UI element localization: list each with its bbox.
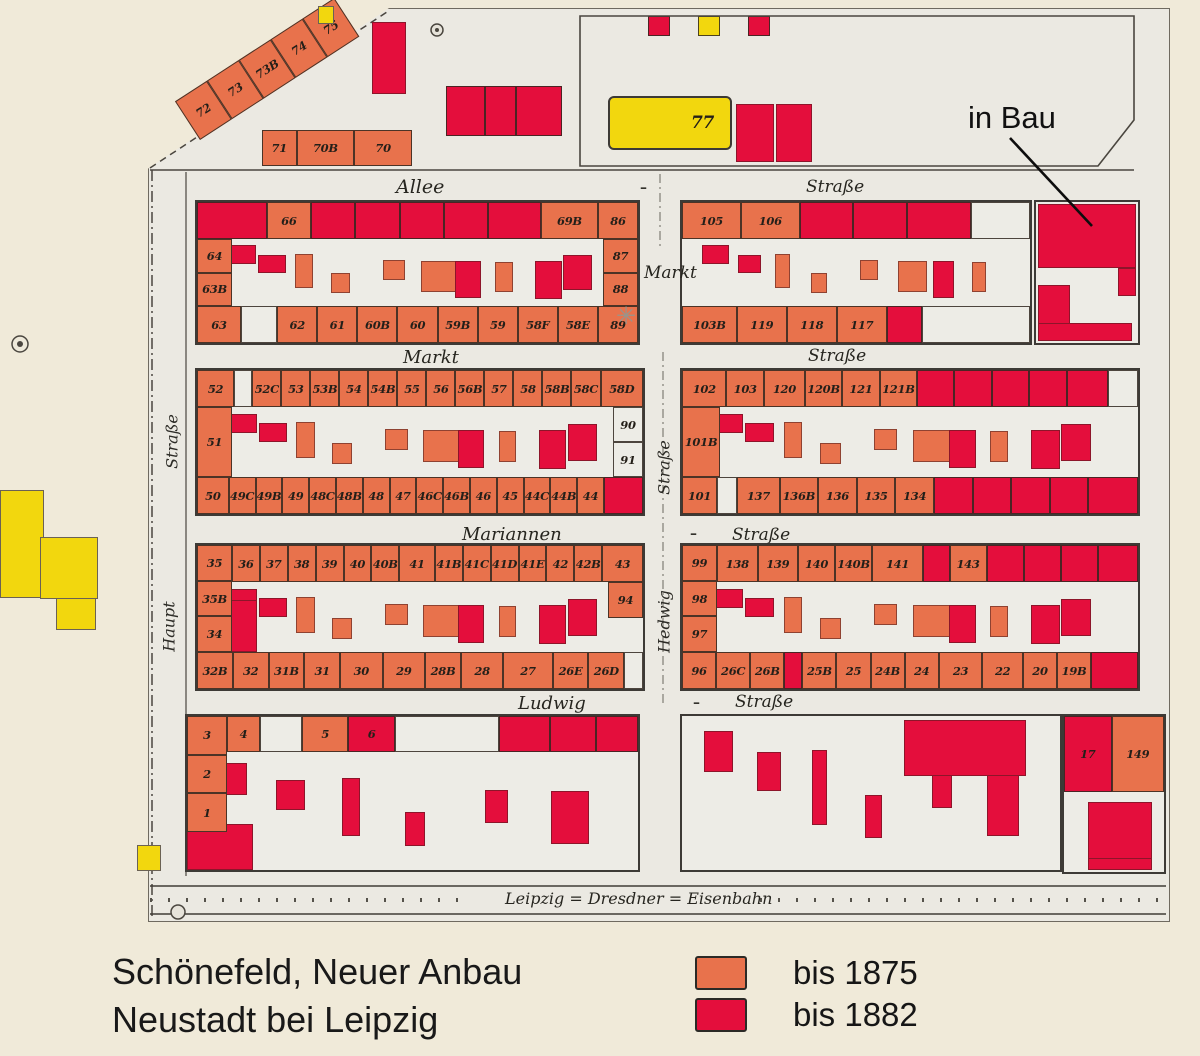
plot-number: 58B [545,382,570,396]
building [551,791,589,844]
building [455,261,481,298]
building [874,429,897,449]
plot: 27 [503,652,552,689]
plot-number: 49B [257,489,282,503]
plot: 54B [368,370,397,407]
plot [241,306,277,343]
plot-number: 139 [766,557,789,571]
plot [624,652,643,689]
plot: 105 [682,202,741,239]
legend-row: bis 1882 [695,998,918,1032]
plot-number: 32B [202,664,227,678]
plot-number: 24B [875,664,900,678]
block-col: 999897 [682,545,717,652]
plot: 62 [277,306,317,343]
plot-number: 56B [458,382,483,396]
building [385,429,408,449]
building [295,254,313,288]
plot-number: 35 [207,556,222,570]
plot-number: 88 [613,282,628,296]
plot [499,716,550,752]
plot: 134 [895,477,934,514]
plot [907,202,971,239]
plot-number: 101 [688,489,711,503]
plot-number: 64 [207,249,222,263]
building [342,778,360,836]
plot-number: 73 [225,80,246,100]
plot-number: 134 [903,489,926,503]
street-label-strasse-row2: Straße [732,525,790,545]
block-col: 321 [187,716,227,832]
plot: 103B [682,306,737,343]
building [385,604,408,624]
building [898,261,927,292]
plot-number: 53 [288,382,303,396]
compass-star: ✳ [616,302,636,331]
plot: 41C [463,545,491,582]
plot-number: 25B [807,664,832,678]
plot-number: 25 [846,664,861,678]
plot: 24B [871,652,905,689]
building [1088,858,1152,870]
building [745,423,774,442]
plot: 54 [339,370,368,407]
plot-number: 42B [576,557,601,571]
building [811,273,827,293]
street-label-strasse-hedwig: Straße [655,426,674,510]
plot [992,370,1029,407]
plot: 2 [187,755,227,794]
plot: 52C [252,370,281,407]
plot: 70 [354,130,412,166]
building [784,422,803,457]
plot-number: 86 [610,214,625,228]
building [757,752,781,791]
plot-number: 138 [726,557,749,571]
plot: 98 [682,581,717,617]
building [745,598,774,617]
plot: 51 [197,407,232,477]
plot [973,477,1012,514]
plot: 63 [197,306,241,343]
plot: 53B [310,370,339,407]
plot: 63B [197,273,232,307]
plot: 44C [524,477,551,514]
block-col: 9091 [613,407,643,477]
plot-number: 136 [826,489,849,503]
plot: 3 [187,716,227,755]
plot-number: 51 [207,435,222,449]
plot: 58 [513,370,542,407]
building [458,605,484,643]
street-label-strasse-west: Straße [163,400,182,484]
plot: 48B [336,477,363,514]
plot-number: 26E [559,664,583,678]
plot-number: 57 [491,382,506,396]
block-row: 363738394040B4141B41C41D41E4242B43 [232,545,643,582]
plot [604,477,643,514]
block-row: 5049C49B4948C48B484746C46B464544C44B44 [197,477,643,514]
plot [311,202,355,239]
block-row: 101137136B136135134 [682,477,1138,514]
plot [234,370,252,407]
plot: 5 [302,716,348,752]
building [860,260,878,280]
plot: 58E [558,306,598,343]
block-south-corner: 17149 [1062,714,1166,874]
railroad-label: Leipzig = Dresdner = Eisenbahn [505,889,735,908]
building [904,720,1026,776]
plot: 102 [682,370,726,407]
building [704,731,733,772]
block-row: 5252C5353B5454B555656B575858B58C58D [197,370,643,407]
plot-number: 31 [314,664,329,678]
block-col: 8788 [603,239,638,306]
plot [648,16,670,36]
plot-number: 46B [444,489,469,503]
plot-number: 94 [618,593,633,607]
block-strasse-east-1: 105106 103B119118117 [680,200,1032,345]
plot: 17 [1064,716,1112,792]
plot-number: 117 [850,318,873,332]
building [1088,802,1152,860]
building [949,430,976,468]
building [383,260,406,280]
plot-number: 1 [203,806,211,820]
building [259,423,287,442]
plot [698,16,720,36]
block-row: 103B119118117 [682,306,1030,343]
plot-number: 96 [691,664,706,678]
plot: 140B [835,545,872,582]
building [423,430,460,462]
plot-number: 120B [807,382,840,396]
plot-number: 59 [490,318,505,332]
plot: 66 [267,202,311,239]
plot: 28B [425,652,461,689]
plot-number: 135 [865,489,888,503]
plot-number: 98 [692,592,707,606]
plot: 35 [197,545,232,581]
plot: 57 [484,370,513,407]
street-dash: – [690,526,697,542]
street-label-markt: Markt [403,347,459,368]
plot: 137 [737,477,779,514]
plot-77: 77 [608,96,732,150]
plot-number: 58C [574,382,598,396]
plot: 48 [363,477,390,514]
plot: 96 [682,652,716,689]
plot: 50 [197,477,229,514]
legend-swatch-1882 [695,998,747,1032]
plot-number: 34 [207,627,222,641]
plot: 120 [764,370,805,407]
plot-number: 60B [365,318,390,332]
plot-number: 103B [693,318,726,332]
building [372,22,406,94]
plot: 25B [802,652,836,689]
plot: 59 [478,306,518,343]
legend-swatch-1875 [695,956,747,990]
block-col: 94 [608,582,643,618]
plot-number: 105 [700,214,723,228]
building [1038,323,1132,341]
plot: 141 [872,545,923,582]
plot-number: 28 [474,664,489,678]
plot-number: 26C [721,664,745,678]
building-yellow [0,490,44,598]
plot: 43 [602,545,643,582]
block-row: 138139140140B141143 [717,545,1138,582]
building [539,430,567,469]
plot-number: 48B [337,489,362,503]
building [332,618,352,639]
plot-number: 73B [253,56,281,81]
plot [1108,370,1138,407]
plot-number: 4 [240,727,248,741]
block-col: 6463B [197,239,232,306]
block-interior [197,407,643,477]
building-yellow [318,6,334,24]
building [776,104,812,162]
plot [748,16,770,36]
plot [971,202,1030,239]
plot: 99 [682,545,717,581]
plot: 39 [316,545,344,582]
plot: 64 [197,239,232,273]
plot [260,716,302,752]
plot-number: 22 [995,664,1010,678]
plot: 118 [787,306,837,343]
plot: 56B [455,370,484,407]
block-row: 105106 [682,202,1030,239]
plot [485,86,516,136]
block-interior [682,239,1030,306]
plot-number: 41E [521,557,545,571]
plot-number: 36 [238,557,253,571]
plot: 149 [1112,716,1164,792]
plot-number: 60 [410,318,425,332]
plot: 121B [880,370,917,407]
plot: 49 [282,477,309,514]
plot-number: 106 [759,214,782,228]
building [259,598,287,617]
plot [1067,370,1108,407]
building [1031,605,1059,644]
plot: 34 [197,616,232,652]
map-title-line2: Neustadt bei Leipzig [112,996,522,1044]
plot: 44 [577,477,604,514]
plot-number: 23 [953,664,968,678]
building [1031,430,1059,469]
plot-number: 48 [368,489,383,503]
plot-number: 121B [882,382,915,396]
plot-number: 49C [230,489,254,503]
plot-number: 63 [211,318,226,332]
legend-label: bis 1875 [793,954,918,992]
plot: 40B [371,545,399,582]
block-row: 32B3231B31302928B282726E26D [197,652,643,689]
plot-number: 48C [310,489,334,503]
building-in-bau [1038,204,1136,268]
plot-number: 58F [526,318,549,332]
plot-number: 44C [525,489,549,503]
plot [1091,652,1138,689]
plot-number: 43 [615,557,630,571]
plot: 91 [613,442,643,477]
plot [1024,545,1061,582]
plot-number: 19B [1062,664,1087,678]
plot [488,202,541,239]
plot: 38 [288,545,316,582]
plot-number: 62 [290,318,305,332]
block-col: 51 [197,407,232,477]
plot: 20 [1023,652,1057,689]
building [874,604,897,624]
legend-label: bis 1882 [793,996,918,1034]
plot [1050,477,1089,514]
plot: 6 [348,716,394,752]
plot-number: 71 [272,141,287,155]
plot-number: 45 [502,489,517,503]
plot: 29 [383,652,426,689]
street-label-mariannen: Mariannen [462,524,562,545]
plot-number: 119 [750,318,773,332]
map-title: Schönefeld, Neuer Anbau Neustadt bei Lei… [112,948,522,1044]
plot-number: 35B [202,592,227,606]
plot-number: 77 [691,113,714,133]
block-ludwig-south-west: 456 321 [185,714,640,872]
building [987,767,1019,835]
building [563,255,592,290]
plot: 46C [416,477,443,514]
building-yellow [137,845,161,871]
plot: 31 [304,652,340,689]
plot [784,652,802,689]
plot: 138 [717,545,758,582]
plot-number: 52 [208,382,223,396]
plot: 53 [281,370,310,407]
plot-number: 40B [373,557,398,571]
plot: 58B [542,370,571,407]
plot-number: 44B [551,489,576,503]
plot: 58F [518,306,558,343]
building [913,605,951,637]
block-strasse-east-2: 102103120120B121121B 101137136B136135134… [680,368,1140,516]
plot [987,545,1024,582]
plot: 55 [397,370,426,407]
building [820,443,840,464]
plot: 4 [227,716,260,752]
block-in-bau [1034,200,1140,345]
plot: 52 [197,370,234,407]
plot: 97 [682,616,717,652]
plot-number: 90 [620,418,635,432]
plot: 37 [260,545,288,582]
plot: 48C [309,477,336,514]
building [1061,599,1091,636]
plot-number: 59B [445,318,470,332]
plot: 25 [836,652,870,689]
building [775,254,790,288]
plot [446,86,485,136]
building [949,605,976,643]
plot [550,716,596,752]
block-allee-west: 6669B86 63626160B6059B5958F58E89 6463B 8… [195,200,640,345]
plot-number: 6 [368,727,376,741]
plot-number: 39 [322,557,337,571]
building [499,606,517,638]
plot: 49B [256,477,283,514]
plot-number: 66 [281,214,296,228]
block-col: 3535B34 [197,545,232,652]
plot [954,370,991,407]
plot: 136B [780,477,819,514]
building [1118,268,1136,296]
block-row: 63626160B6059B5958F58E89 [197,306,638,343]
plot-number: 70 [375,141,390,155]
block-row: 456 [227,716,638,752]
building [458,430,484,468]
plot-number: 140B [837,557,870,571]
street-label-allee: Allee [396,176,444,198]
plot [1098,545,1139,582]
building-yellow [40,537,98,599]
plot-number: 91 [620,453,635,467]
building [865,795,882,838]
plot-number: 28B [431,664,456,678]
plot-number: 74 [289,38,310,58]
plot [1088,477,1138,514]
plot-number: 55 [404,382,419,396]
plot: 86 [598,202,638,239]
plot: 60 [397,306,437,343]
plot: 32B [197,652,233,689]
plot: 36 [232,545,260,582]
building [736,104,774,162]
plot [917,370,954,407]
plot-number: 38 [294,557,309,571]
plot: 42B [574,545,602,582]
plot [400,202,444,239]
plot-number: 41D [492,557,517,571]
in-bau-label: in Bau [968,100,1056,136]
plot: 136 [818,477,857,514]
building [495,262,512,293]
plot: 60B [357,306,397,343]
plot-number: 69B [557,214,582,228]
block-interior [682,582,1138,652]
plot: 26B [750,652,784,689]
block-row: 17149 [1064,716,1164,792]
plot-number: 32 [243,664,258,678]
plot-number: 120 [773,382,796,396]
building [331,273,351,293]
plot: 22 [982,652,1023,689]
plot [197,202,267,239]
block-strasse-east-3: 138139140140B141143 9626C26B25B2524B2423… [680,543,1140,691]
plot: 32 [233,652,269,689]
plot: 120B [805,370,842,407]
map-title-line1: Schönefeld, Neuer Anbau [112,948,522,996]
building [913,430,951,462]
plot: 44B [550,477,577,514]
plot: 101B [682,407,720,477]
plot [355,202,399,239]
plot: 121 [842,370,879,407]
plot-number: 136B [783,489,816,503]
plot: 70B [297,130,355,166]
